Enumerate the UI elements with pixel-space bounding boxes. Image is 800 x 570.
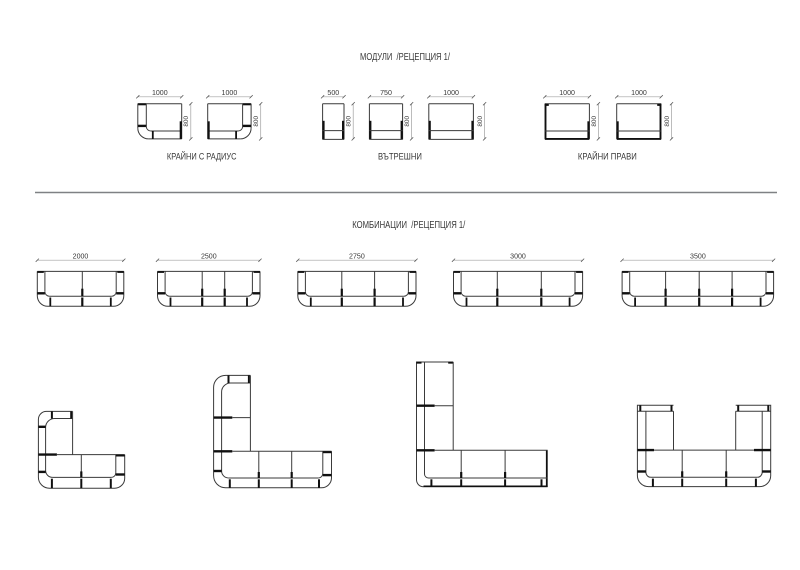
svg-text:1000: 1000 <box>559 88 575 97</box>
svg-text:2000: 2000 <box>73 251 89 260</box>
svg-text:800: 800 <box>183 115 190 126</box>
svg-text:500: 500 <box>327 88 339 97</box>
svg-text:ВЪТРЕШНИ: ВЪТРЕШНИ <box>378 152 422 162</box>
svg-text:1000: 1000 <box>631 88 647 97</box>
svg-text:3000: 3000 <box>510 251 526 260</box>
svg-text:800: 800 <box>477 115 484 126</box>
svg-text:800: 800 <box>404 115 411 126</box>
svg-text:800: 800 <box>664 115 671 126</box>
svg-text:800: 800 <box>346 115 353 126</box>
svg-text:1000: 1000 <box>152 88 168 97</box>
svg-text:1000: 1000 <box>222 88 238 97</box>
svg-text:3500: 3500 <box>690 251 706 260</box>
svg-text:МОДУЛИ /РЕЦЕПЦИЯ 1/: МОДУЛИ /РЕЦЕПЦИЯ 1/ <box>360 52 450 63</box>
svg-text:КРАЙНИ С РАДИУС: КРАЙНИ С РАДИУС <box>167 151 237 162</box>
svg-text:2500: 2500 <box>201 251 217 260</box>
svg-text:750: 750 <box>380 88 392 97</box>
svg-text:800: 800 <box>253 115 260 126</box>
svg-text:800: 800 <box>591 115 598 126</box>
svg-text:КОМБИНАЦИИ /РЕЦЕПЦИЯ 1/: КОМБИНАЦИИ /РЕЦЕПЦИЯ 1/ <box>352 220 465 231</box>
svg-text:1000: 1000 <box>443 88 459 97</box>
svg-text:КРАЙНИ ПРАВИ: КРАЙНИ ПРАВИ <box>578 151 637 162</box>
svg-text:2750: 2750 <box>349 251 365 260</box>
